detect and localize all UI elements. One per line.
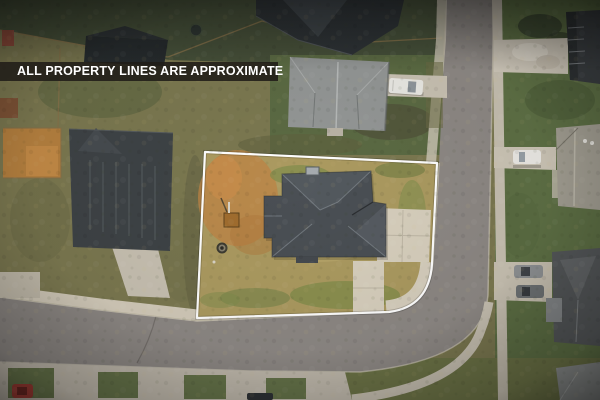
aerial-photo-stage: ALL PROPERTY LINES ARE APPROXIMATE bbox=[0, 0, 600, 400]
property-disclaimer-badge: ALL PROPERTY LINES ARE APPROXIMATE bbox=[0, 62, 278, 81]
vignette bbox=[0, 0, 600, 400]
aerial-photo bbox=[0, 0, 600, 400]
disclaimer-text: ALL PROPERTY LINES ARE APPROXIMATE bbox=[17, 64, 283, 78]
